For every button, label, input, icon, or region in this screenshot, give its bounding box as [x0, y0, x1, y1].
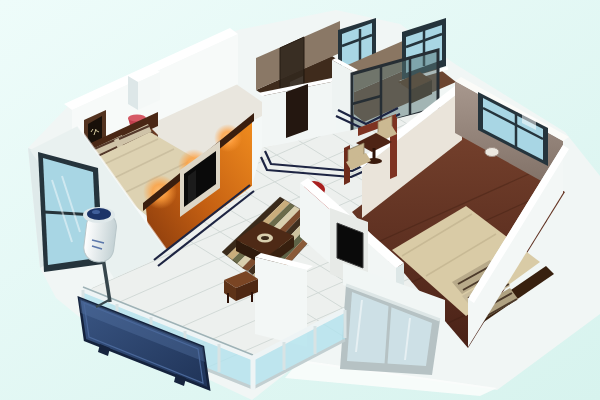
wall-lamp — [485, 148, 499, 157]
floor-plan-scene — [0, 0, 600, 400]
decor-bowl-center — [261, 236, 269, 240]
heater-cap — [87, 208, 111, 220]
bathroom-doorway — [286, 84, 308, 138]
heater-cap-highlight — [92, 210, 100, 214]
tv-reflection — [188, 170, 196, 204]
floor-plan-3d-render — [0, 0, 600, 400]
